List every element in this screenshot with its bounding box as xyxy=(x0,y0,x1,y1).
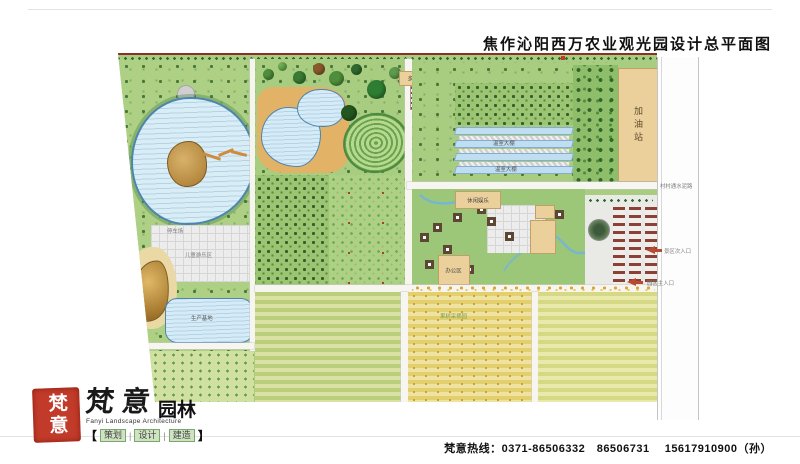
lake-island xyxy=(167,141,207,187)
services-row: 【 策划 | 设计 | 建造 】 xyxy=(85,427,210,444)
office-label: 办公区 xyxy=(446,266,462,274)
greenhouse-strip xyxy=(454,153,574,161)
tree-icon xyxy=(367,80,386,99)
office-building: 办公区 xyxy=(438,255,470,285)
tree-icon xyxy=(278,62,287,71)
greenhouse-label-b: 温室大棚 xyxy=(495,165,517,173)
bracket-left: 【 xyxy=(85,427,97,444)
road-note-label: 村村通水泥路 xyxy=(660,182,692,190)
tree-icon xyxy=(263,69,274,80)
northeast-orchard-rows xyxy=(455,83,573,125)
gas-station-label: 加油站 xyxy=(632,106,645,145)
market-tree-row xyxy=(587,197,653,205)
flower-hedge-row xyxy=(412,284,655,292)
orchard-east-block xyxy=(329,175,405,285)
hotline-text: 梵意热线：0371-86506332 86506731 15617910900（… xyxy=(444,440,772,456)
greenhouse-strip xyxy=(454,127,574,135)
page-title: 焦作沁阳西万农业观光园设计总平面图 xyxy=(483,33,772,54)
service-divider: | xyxy=(163,431,165,441)
tree-icon xyxy=(351,64,362,75)
service-design: 设计 xyxy=(134,429,160,442)
bracket-right: 】 xyxy=(198,427,210,444)
company-seal: 梵意 xyxy=(32,387,81,443)
secondary-entrance-arrow xyxy=(646,246,662,254)
top-rule xyxy=(28,9,772,10)
secondary-entrance-label: 景区次入口 xyxy=(664,247,691,255)
poster-page: { "header": { "title": "焦作沁阳西万农业观光园设计总平面… xyxy=(0,0,800,464)
kids-area-label: 儿童游乐区 xyxy=(185,251,212,259)
market-stall-row xyxy=(613,207,625,285)
courtyard-building xyxy=(505,232,514,241)
service-planning: 策划 xyxy=(100,429,126,442)
courtyard-building xyxy=(433,223,442,232)
leisure-label: 休闲娱乐 xyxy=(467,196,489,204)
courtyard-building xyxy=(555,210,564,219)
tree-icon xyxy=(341,105,357,121)
plan-site: 停车场 儿童游乐区 生产基地 多功 xyxy=(115,53,657,404)
brand-english-name: Fanyi Landscape Architecture xyxy=(86,417,181,424)
arrow-tail xyxy=(636,281,643,284)
tree-icon xyxy=(329,71,344,86)
market-round-plaza xyxy=(588,219,610,241)
dense-tree-grove xyxy=(573,65,618,182)
courtyard-building xyxy=(420,233,429,242)
main-entrance-arrow xyxy=(627,278,643,286)
leisure-building: 休闲娱乐 xyxy=(455,191,501,209)
crop-field-west xyxy=(255,292,401,404)
master-plan-drawing: 停车场 儿童游乐区 生产基地 多功 xyxy=(115,53,697,420)
arrow-tail xyxy=(655,249,662,252)
company-logo-block: 梵意 梵意 园林 Fanyi Landscape Architecture 【 … xyxy=(30,384,245,448)
path-horizontal-southwest xyxy=(133,343,254,349)
tree-icon xyxy=(313,63,325,75)
courtyard-building xyxy=(443,245,452,254)
service-divider: | xyxy=(129,431,131,441)
main-hall-building xyxy=(530,220,556,254)
production-base-pond: 生产基地 xyxy=(165,298,253,343)
tree-icon xyxy=(293,71,306,84)
orchard-picking-label: 果树采摘园 xyxy=(440,312,467,320)
market-stall-row xyxy=(629,207,641,285)
parking-lot-label: 停车场 xyxy=(167,227,183,235)
arrow-head-icon xyxy=(646,246,655,254)
service-build: 建造 xyxy=(169,429,195,442)
courtyard-building xyxy=(453,213,462,222)
field-path xyxy=(401,292,408,404)
orchard-west-block xyxy=(255,175,329,285)
gas-station: 加油站 xyxy=(618,68,657,182)
brand-calligraphy: 梵意 xyxy=(84,380,160,420)
main-entrance-label: 园区主入口 xyxy=(647,279,674,287)
water-play-pond xyxy=(297,89,345,127)
crop-field-middle xyxy=(408,292,532,404)
path-horizontal-mid xyxy=(407,182,657,189)
annex-building xyxy=(535,205,555,219)
county-road xyxy=(657,57,699,420)
courtyard-building xyxy=(487,217,496,226)
greenhouse-label-a: 温室大棚 xyxy=(493,139,515,147)
production-base-label: 生产基地 xyxy=(191,314,213,322)
arrow-head-icon xyxy=(627,278,636,286)
courtyard-building xyxy=(425,260,434,269)
north-entry-marker xyxy=(561,56,565,60)
crop-field-east xyxy=(538,292,657,404)
